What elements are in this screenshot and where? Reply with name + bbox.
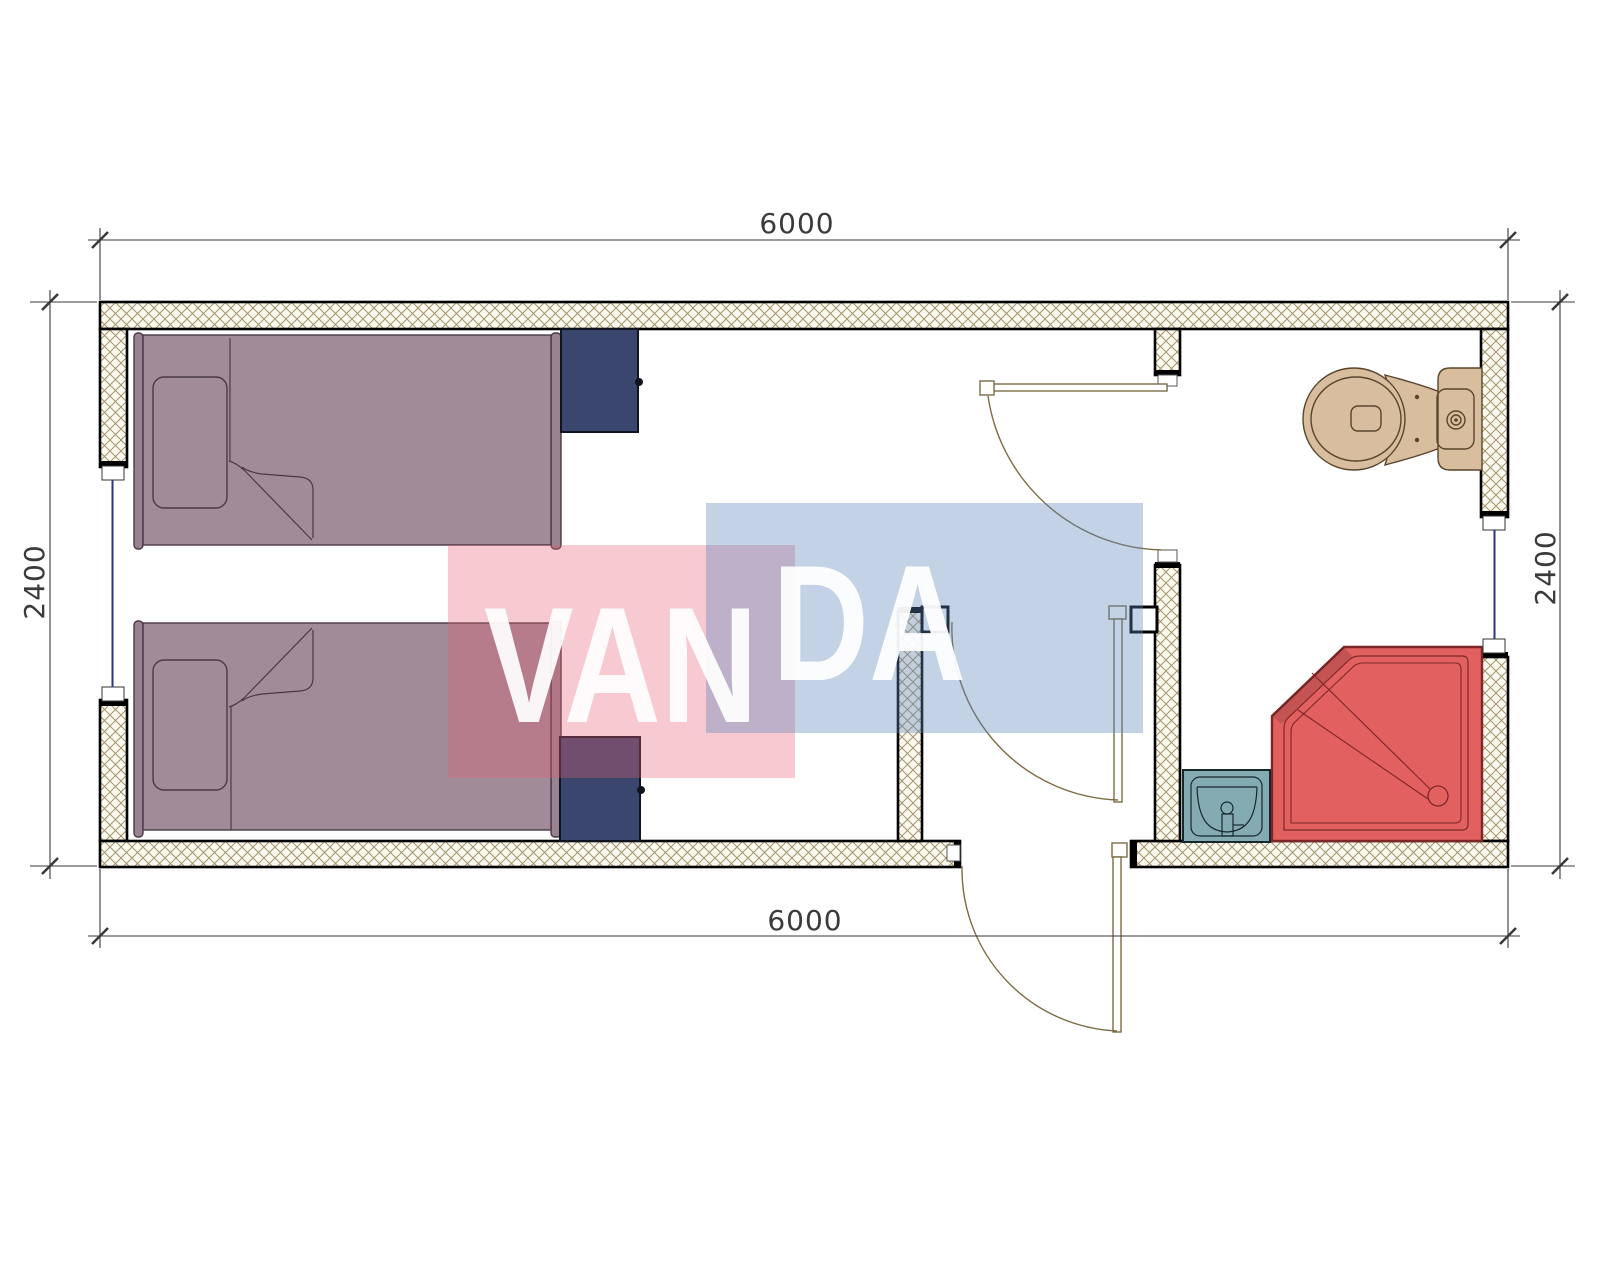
bathroom-door-leaf bbox=[985, 384, 1167, 391]
nightstand-1-knob bbox=[635, 378, 643, 386]
bed-1-headboard bbox=[134, 333, 143, 549]
bathroom-door-leaf-cap bbox=[980, 381, 994, 395]
toilet-bolt-bottom bbox=[1415, 438, 1419, 442]
window-right bbox=[1483, 516, 1505, 653]
wall-top bbox=[100, 302, 1508, 329]
wall-left-lower bbox=[100, 700, 127, 841]
bed-1 bbox=[134, 333, 561, 549]
bed-2-headboard bbox=[134, 621, 143, 837]
sink bbox=[1183, 770, 1270, 842]
bed-1-pillow bbox=[153, 377, 227, 508]
entry-door-leaf bbox=[1113, 857, 1121, 1032]
shower-outline bbox=[1272, 647, 1482, 841]
wall-left-upper bbox=[100, 329, 127, 467]
nightstand-1 bbox=[561, 329, 643, 432]
dim-label-top: 6000 bbox=[759, 207, 834, 240]
toilet-drain bbox=[1351, 406, 1381, 431]
dim-label-right: 2400 bbox=[1529, 530, 1562, 605]
floor-plan-canvas: 6000 6000 2400 2400 VAN DA bbox=[0, 0, 1600, 1280]
nightstand-2-knob bbox=[637, 786, 645, 794]
bathroom-door-jamb-box-bottom bbox=[1158, 550, 1177, 562]
entry-door-swing-arc bbox=[962, 866, 1117, 1031]
bed-1-footboard bbox=[551, 333, 561, 549]
watermark-text-van: VAN bbox=[484, 573, 758, 757]
wall-right-upper bbox=[1481, 329, 1508, 517]
toilet-flush-button-dot bbox=[1454, 418, 1458, 422]
entry-door-jamb-box-right bbox=[1112, 843, 1127, 857]
window-right-jamb-bottom bbox=[1483, 639, 1505, 653]
floor-plan-page: 6000 6000 2400 2400 VAN DA bbox=[0, 0, 1600, 1280]
wall-bottom-left bbox=[100, 841, 960, 867]
entry-door-jamb-box-left bbox=[947, 845, 960, 861]
window-right-jamb-top bbox=[1483, 516, 1505, 530]
bed-2-pillow bbox=[153, 660, 227, 790]
entry-door bbox=[947, 843, 1127, 1032]
sink-base bbox=[1183, 770, 1270, 842]
wall-partition-lower bbox=[1155, 565, 1180, 841]
window-left-jamb-bottom bbox=[102, 687, 124, 701]
toilet-bolt-top bbox=[1415, 395, 1419, 399]
window-left bbox=[102, 466, 124, 701]
toilet bbox=[1303, 368, 1482, 470]
wall-bottom-right bbox=[1131, 841, 1508, 867]
toilet-tank bbox=[1438, 368, 1482, 470]
window-left-jamb-top bbox=[102, 466, 124, 480]
wall-right-lower bbox=[1481, 657, 1508, 841]
watermark-text-da: DA bbox=[772, 531, 966, 715]
shower-tray bbox=[1272, 647, 1482, 841]
dim-label-bottom: 6000 bbox=[767, 904, 842, 937]
nightstand-1-body bbox=[561, 329, 638, 432]
wall-partition-upper bbox=[1155, 329, 1180, 375]
dim-label-left: 2400 bbox=[18, 544, 51, 619]
